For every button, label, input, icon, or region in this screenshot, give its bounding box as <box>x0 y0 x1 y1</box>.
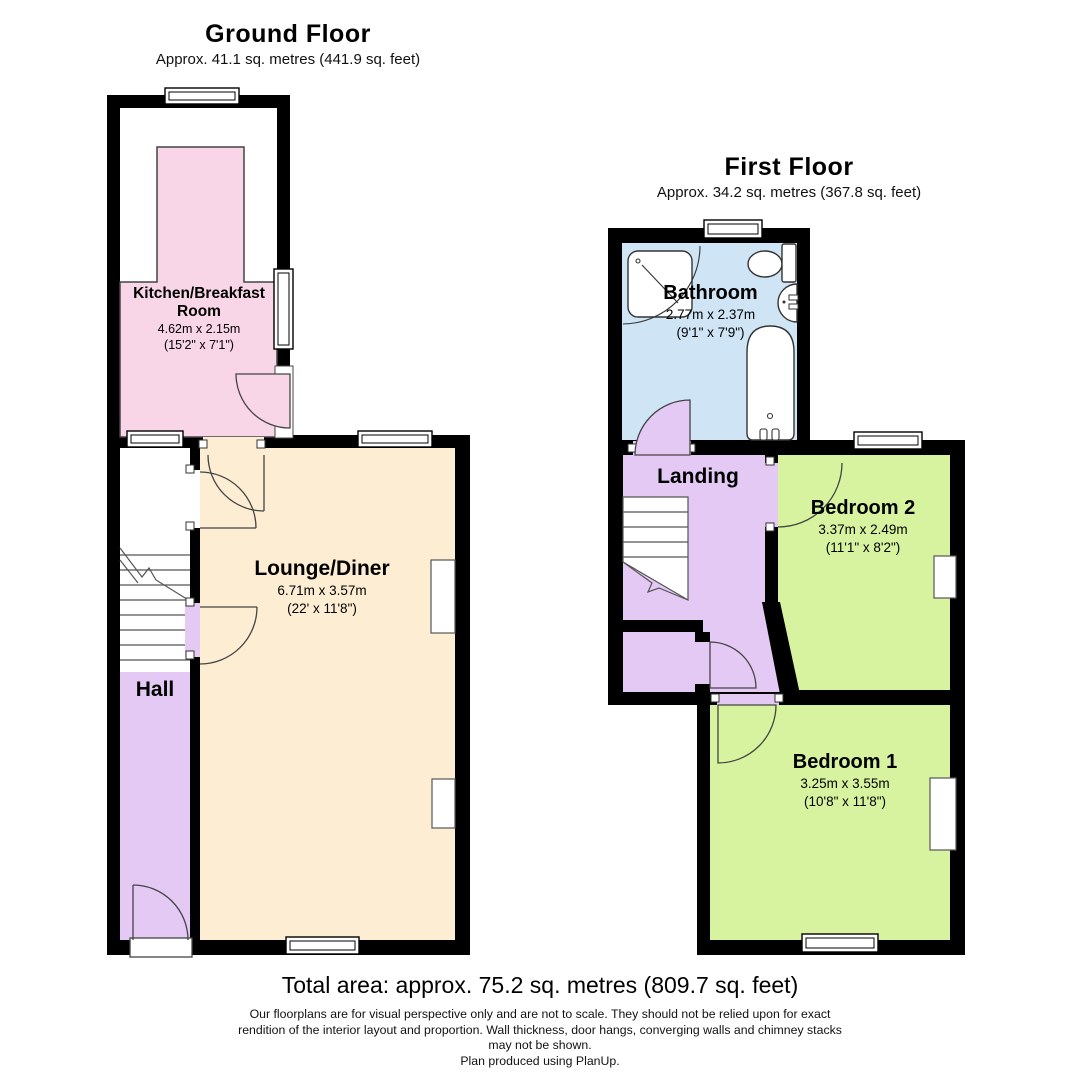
window-icon-bedroom1-bottom <box>802 934 878 952</box>
disclaimer-line-1: Our floorplans are for visual perspectiv… <box>0 1007 1080 1023</box>
window-icon-lounge-top <box>358 431 432 447</box>
room-label-bedroom2: Bedroom 2 3.37m x 2.49m (11'1" x 8'2") <box>772 496 954 556</box>
lounge-dims-imperial: (22' x 11'8") <box>202 600 442 618</box>
ground-floor-subtitle: Approx. 41.1 sq. metres (441.9 sq. feet) <box>107 51 469 68</box>
landing-name: Landing <box>617 464 779 490</box>
room-label-lounge: Lounge/Diner 6.71m x 3.57m (22' x 11'8") <box>202 556 442 617</box>
window-icon-kitchen-top <box>165 88 239 104</box>
bathtub-icon <box>747 326 794 440</box>
window-icon-bedroom2-top <box>854 432 922 449</box>
bathroom-dims-metric: 2.77m x 2.37m <box>618 306 803 324</box>
plan-credit: Plan produced using PlanUp. <box>0 1054 1080 1070</box>
bedroom2-name: Bedroom 2 <box>772 496 954 521</box>
cupboard-wall-h <box>620 620 703 632</box>
bedroom2-dims-imperial: (11'1" x 8'2") <box>772 539 954 557</box>
kitchen-name-line1: Kitchen/Breakfast <box>118 285 280 303</box>
bathroom-name: Bathroom <box>618 281 803 306</box>
bedroom2-room-area <box>771 455 950 690</box>
disclaimer-block: Our floorplans are for visual perspectiv… <box>0 1007 1080 1069</box>
window-icon-lounge-bottom <box>286 937 359 954</box>
total-area-text: Total area: approx. 75.2 sq. metres (809… <box>0 972 1080 999</box>
kitchen-dims-metric: 4.62m x 2.15m <box>118 321 280 337</box>
lounge-alcove-bottom <box>432 779 455 828</box>
bedroom2-dims-metric: 3.37m x 2.49m <box>772 521 954 539</box>
bedroom2-alcove <box>934 556 956 598</box>
lounge-room-area <box>200 448 455 940</box>
room-label-bathroom: Bathroom 2.77m x 2.37m (9'1" x 7'9") <box>618 281 803 341</box>
room-label-bedroom1: Bedroom 1 3.25m x 3.55m (10'8" x 11'8") <box>726 750 964 810</box>
bedroom1-dims-imperial: (10'8" x 11'8") <box>726 793 964 811</box>
kitchen-dims-imperial: (15'2" x 7'1") <box>118 337 280 353</box>
room-label-hall: Hall <box>117 677 193 703</box>
first-floor-subtitle: Approx. 34.2 sq. metres (367.8 sq. feet) <box>608 184 970 201</box>
room-label-kitchen: Kitchen/Breakfast Room 4.62m x 2.15m (15… <box>118 285 280 353</box>
window-icon-stairwell <box>127 431 183 447</box>
disclaimer-line-3: may not be shown. <box>0 1038 1080 1054</box>
disclaimer-line-2: rendition of the interior layout and pro… <box>0 1023 1080 1039</box>
hall-name: Hall <box>117 677 193 703</box>
kitchen-name-line2: Room <box>118 303 280 321</box>
floorplan-page: Ground Floor Approx. 41.1 sq. metres (44… <box>0 0 1080 1080</box>
room-label-landing: Landing <box>617 464 779 490</box>
bedroom1-name: Bedroom 1 <box>726 750 964 775</box>
ground-floor-title: Ground Floor <box>107 20 469 49</box>
lounge-name: Lounge/Diner <box>202 556 442 582</box>
bedroom1-dims-metric: 3.25m x 3.55m <box>726 775 964 793</box>
ground-floor-plan <box>107 88 470 957</box>
first-floor-title: First Floor <box>608 153 970 182</box>
bathroom-dims-imperial: (9'1" x 7'9") <box>618 324 803 342</box>
window-icon-bathroom-top <box>704 220 762 238</box>
hall-room-area <box>120 672 190 940</box>
lounge-dims-metric: 6.71m x 3.57m <box>202 582 442 600</box>
